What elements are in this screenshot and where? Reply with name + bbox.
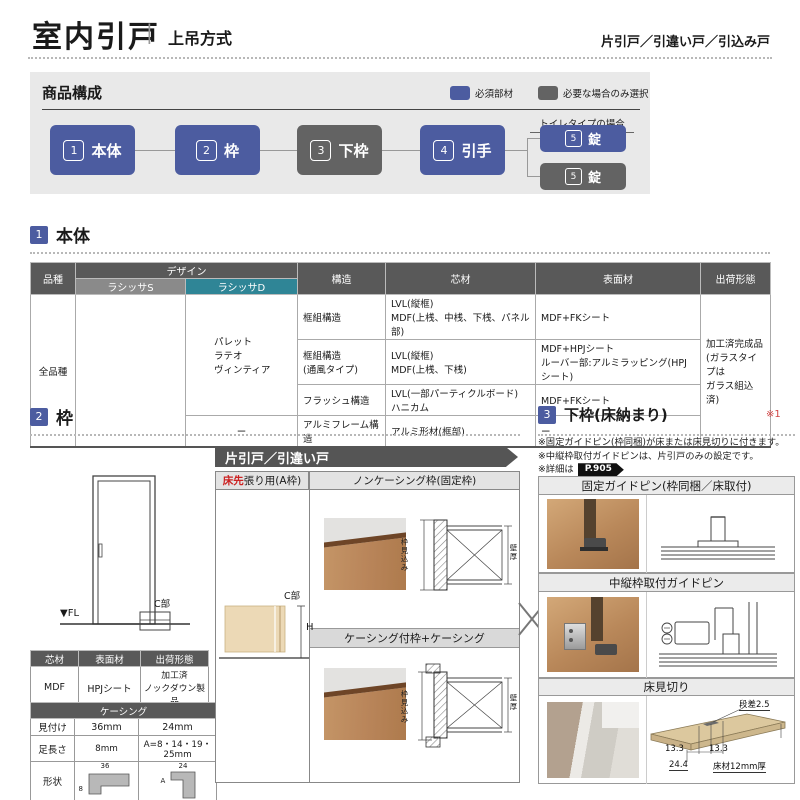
lock-label: 錠: [588, 167, 601, 186]
page-reference-tag: P.905: [578, 463, 624, 476]
floor-first-section-drawing: [219, 600, 309, 664]
note-line: ※固定ガイドピン(枠同梱)が床または床見切りに付きます。: [538, 436, 785, 450]
table-cell: アルミ形材(框部): [386, 416, 536, 448]
lock-item-required: 5 錠: [540, 125, 626, 152]
required-color-swatch: [450, 86, 470, 100]
flow-item-frame: 2 枠: [175, 125, 260, 175]
col-header: 出荷形態: [701, 263, 771, 295]
legend-optional-label: 必要な場合のみ選択: [563, 86, 649, 100]
composition-title: 商品構成: [42, 82, 102, 103]
table-cell: パレット ラテオ ヴィンティア: [186, 295, 298, 416]
connector-line: [505, 150, 527, 151]
row-label: 形状: [31, 762, 75, 800]
col-header: 表面材: [79, 651, 141, 667]
branch-line: [527, 138, 540, 139]
frame-elevation-diagram: ▼FL C部: [58, 472, 198, 634]
floor-strip-title: 床見切り: [539, 679, 794, 696]
mid-stile-guide-pin-content: [539, 592, 794, 678]
floor-first-red: 床先: [223, 473, 244, 488]
material-label: 床材12mm厚: [713, 760, 766, 773]
page-subtitle: 上吊方式: [168, 25, 232, 49]
door-type-banner: 片引戸／引違い戸: [215, 447, 518, 467]
connector-line: [382, 150, 420, 151]
non-casing-cross-section: 枠見込み 壁厚: [410, 512, 514, 602]
connector-line: [260, 150, 297, 151]
legend-optional: 必要な場合のみ選択: [538, 86, 649, 100]
door-corner-photo: [324, 518, 406, 590]
floor-first-header: 床先張り用(A枠): [216, 472, 309, 490]
c-part-label: C部: [284, 588, 300, 602]
lock-item-optional: 5 錠: [540, 163, 626, 190]
mid-stile-guide-pin-box: 中縦枠取付ガイドピン: [538, 573, 795, 678]
table-cell: ー: [186, 416, 298, 448]
door-category-label: 片引戸／引違い戸／引込み戸: [601, 31, 770, 50]
row-label: 見付け: [31, 719, 75, 736]
dim-label: 13.3: [665, 744, 684, 754]
baseboard: [602, 702, 639, 728]
non-casing-header: ノンケーシング枠(固定枠): [310, 472, 519, 490]
guide-pin-drawing: [653, 501, 783, 567]
table-cell: MDF+HPJシート ルーバー部:アルミラッピング(HPJシート): [536, 340, 701, 385]
screw-dot: [569, 629, 573, 633]
section-1-badge: 1: [30, 226, 48, 244]
content-divider: [646, 495, 647, 573]
dim-label: 24: [179, 762, 188, 770]
branch-line: [527, 138, 528, 177]
door-edge: [591, 597, 603, 641]
lock-num: 5: [565, 130, 582, 147]
section-2-badge: 2: [30, 408, 48, 426]
frame-type-panel: 床先張り用(A枠) ノンケーシング枠(固定枠) 枠見込み 壁厚: [215, 471, 520, 783]
fl-marker-label: ▼FL: [60, 608, 79, 619]
legend-required: 必須部材: [450, 86, 513, 100]
fixed-guide-pin-content: [539, 495, 794, 573]
reference-mark: ※1: [766, 409, 781, 420]
col-header: 芯材: [31, 651, 79, 667]
table-cell: アルミフレーム構造: [298, 416, 386, 448]
page-title: 室内引戸: [32, 12, 160, 56]
dim-label: A: [161, 777, 166, 785]
pin-base: [580, 547, 608, 551]
wood-texture: [324, 532, 406, 590]
legend-required-label: 必須部材: [475, 86, 513, 100]
guide-pin-photo: [547, 499, 639, 569]
floor-strip-diagram: 段差2.5 13.3 13.3 24.4 床材12mm厚: [647, 698, 791, 782]
flow-item-body: 1 本体: [50, 125, 135, 175]
col-header: デザイン: [76, 263, 298, 279]
fixed-guide-pin-box: 固定ガイドピン(枠同梱／床取付): [538, 476, 795, 573]
col-header: 表面材: [536, 263, 701, 295]
bracket-photo: [547, 597, 639, 672]
catalog-page: 室内引戸 | 上吊方式 片引戸／引違い戸／引込み戸 商品構成 必須部材 必要な場…: [0, 0, 800, 800]
branch-line: [527, 176, 540, 177]
cross-section-drawing: [410, 660, 514, 756]
casing-shape-24: 24 A: [139, 762, 217, 800]
floor-first-rest: 張り用(A枠): [244, 473, 301, 488]
wood-texture: [324, 682, 406, 740]
section-bottom-heading: 3 下枠(床納まり): [538, 404, 668, 425]
flow-item-handle: 4 引手: [420, 125, 505, 175]
product-composition-panel: 商品構成 必須部材 必要な場合のみ選択 トイレタイプの場合 1 本体 2 枠 3…: [30, 72, 650, 194]
col-header: 構造: [298, 263, 386, 295]
lock-label: 錠: [588, 129, 601, 148]
casing-table: ケーシング 見付け 36mm 24mm 足長さ 8mm A=8・14・19・25…: [30, 702, 217, 800]
col-header-series-d: ラシッサD: [186, 279, 298, 295]
dim-label: 36: [101, 762, 110, 770]
total-dim-label: 24.4: [669, 760, 688, 771]
lock-num: 5: [565, 168, 582, 185]
flow-num-2: 2: [196, 140, 217, 161]
col-header: 出荷形態: [141, 651, 209, 667]
door-edge: [584, 499, 596, 540]
table-cell: A=8・14・19・25mm: [139, 736, 217, 762]
pin-part: [595, 644, 617, 655]
frame-depth-dim-label: 枠見込み: [399, 690, 410, 724]
flow-num-3: 3: [310, 140, 331, 161]
flow-num-4: 4: [433, 140, 454, 161]
section-frame-heading: 2 枠: [30, 404, 73, 429]
section-3-badge: 3: [538, 406, 556, 424]
bracket-drawing: [653, 598, 783, 672]
section-body-heading: 1 本体: [30, 222, 90, 247]
flow-label-body: 本体: [91, 140, 121, 161]
dim-label: 8: [79, 785, 83, 793]
table-cell: 8mm: [75, 736, 139, 762]
flow-num-1: 1: [63, 140, 84, 161]
table-row: 全品種 パレット ラテオ ヴィンティア 框組構造 LVL(縦框) MDF(上桟、…: [31, 295, 771, 340]
metal-bracket: [564, 623, 586, 651]
col-header: 品種: [31, 263, 76, 295]
floor-strip-content: 段差2.5 13.3 13.3 24.4 床材12mm厚: [539, 696, 794, 784]
frame-depth-dim-label: 枠見込み: [399, 538, 410, 572]
casing-frame-header: ケーシング付枠+ケーシング: [310, 628, 519, 648]
casing-profile-drawing: [77, 770, 137, 800]
dim-label: 13.3: [709, 744, 728, 754]
mid-stile-guide-pin-title: 中縦枠取付ガイドピン: [539, 574, 794, 592]
content-divider: [646, 592, 647, 678]
col-header-series-s: ラシッサS: [76, 279, 186, 295]
flow-item-bottom-rail: 3 下枠: [297, 125, 382, 175]
section-divider: [30, 434, 520, 436]
casing-table-title: ケーシング: [31, 703, 217, 719]
table-cell: LVL(縦框) MDF(上桟、下桟): [386, 340, 536, 385]
section-1-title: 本体: [56, 222, 90, 247]
door-corner-photo: [324, 668, 406, 740]
casing-shape-36: 36 8: [75, 762, 139, 800]
fixed-guide-pin-title: 固定ガイドピン(枠同梱／床取付): [539, 477, 794, 495]
table-cell: 框組構造: [298, 295, 386, 340]
casing-profile-drawing: [153, 770, 203, 800]
flow-label-handle: 引手: [461, 140, 491, 161]
row-label: 足長さ: [31, 736, 75, 762]
title-separator: |: [146, 20, 153, 44]
table-cell: [76, 295, 186, 448]
screw-dot: [569, 638, 573, 642]
header-divider: [28, 57, 772, 59]
floor-strip-box: 床見切り: [538, 678, 795, 784]
table-cell: 加工済完成品 (ガラスタイプは ガラス組込済): [701, 295, 771, 448]
table-cell: 36mm: [75, 719, 139, 736]
note-line: ※中縦枠取付ガイドピンは、片引戸のみの設定です。: [538, 450, 785, 464]
connector-line: [135, 150, 175, 151]
optional-color-swatch: [538, 86, 558, 100]
c-part-label: C部: [154, 596, 170, 610]
composition-underline: [42, 109, 640, 110]
table-cell: 24mm: [139, 719, 217, 736]
table-cell: フラッシュ構造: [298, 385, 386, 416]
frame-spec-table: 芯材 表面材 出荷形態 MDF HPJシート 加工済 ノックダウン製品: [30, 650, 209, 710]
note-line: ※詳細は P.905: [538, 463, 785, 477]
floor-strip-photo: [547, 702, 639, 778]
bottom-rail-notes: ※固定ガイドピン(枠同梱)が床または床見切りに付きます。 ※中縦枠取付ガイドピン…: [538, 436, 785, 477]
section-3-title: 下枠(床納まり): [564, 404, 668, 425]
section-divider: [30, 252, 770, 254]
wall-thickness-dim-label: 壁厚: [508, 544, 519, 561]
table-cell: LVL(縦框) MDF(上桟、中桟、下桟、パネル部): [386, 295, 536, 340]
table-cell: MDF+FKシート: [536, 295, 701, 340]
casing-cross-section: 枠見込み 壁厚: [410, 660, 514, 756]
wall-thickness-dim-label: 壁厚: [508, 694, 519, 711]
cross-section-drawing: [410, 512, 514, 602]
h-dim-label: H: [306, 622, 314, 633]
table-cell: 框組構造 (通風タイプ): [298, 340, 386, 385]
flow-label-frame: 枠: [224, 140, 239, 161]
note-detail-prefix: ※詳細は: [538, 463, 574, 477]
table-cell: LVL(一部パーティクルボード) ハニカム: [386, 385, 536, 416]
flow-label-bottom-rail: 下枠: [338, 140, 368, 161]
step-dim-label: 段差2.5: [739, 698, 770, 711]
section-2-title: 枠: [56, 404, 73, 429]
col-header: 芯材: [386, 263, 536, 295]
